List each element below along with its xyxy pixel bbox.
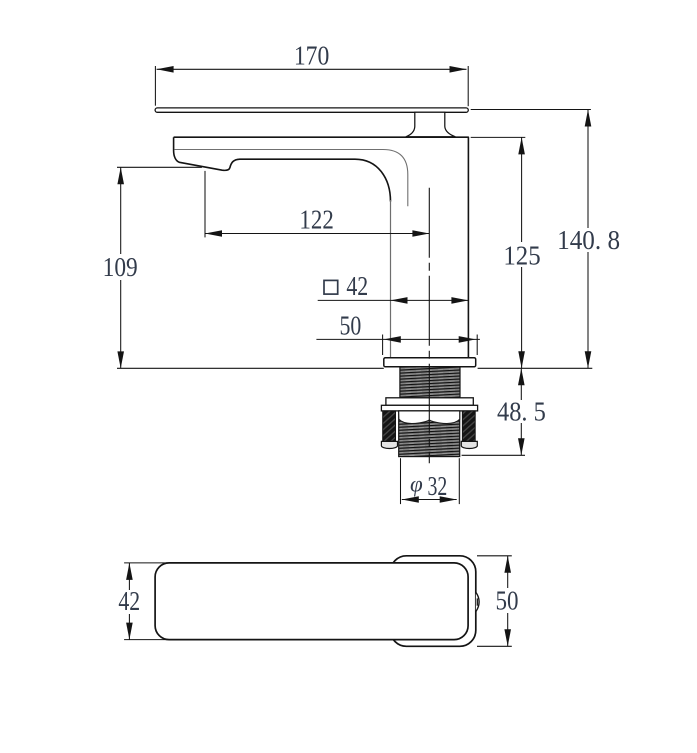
svg-text:140. 8: 140. 8 bbox=[557, 225, 620, 255]
svg-text:φ: φ bbox=[410, 472, 423, 497]
svg-text:42: 42 bbox=[346, 271, 368, 301]
svg-text:50: 50 bbox=[340, 310, 362, 340]
svg-text:50: 50 bbox=[496, 585, 519, 615]
svg-text:170: 170 bbox=[294, 40, 330, 70]
svg-text:109: 109 bbox=[103, 252, 138, 282]
svg-text:125: 125 bbox=[503, 241, 540, 271]
svg-text:32: 32 bbox=[428, 471, 448, 501]
svg-text:42: 42 bbox=[118, 586, 140, 616]
svg-text:122: 122 bbox=[299, 205, 333, 235]
svg-text:48. 5: 48. 5 bbox=[497, 396, 546, 426]
